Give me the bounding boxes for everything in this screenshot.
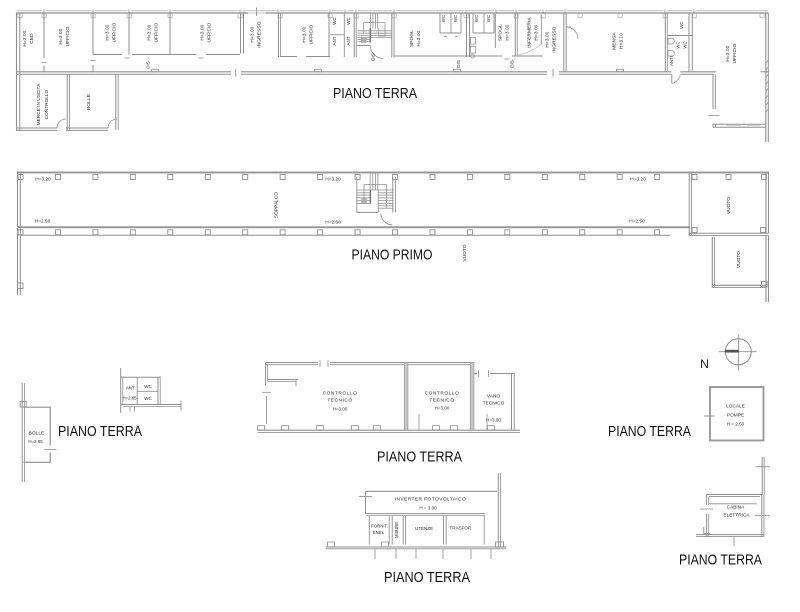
- svg-text:H=3.00: H=3.00: [22, 30, 28, 46]
- svg-text:WC: WC: [474, 15, 479, 22]
- svg-text:INGRESSO: INGRESSO: [257, 21, 263, 47]
- svg-text:TRASFOR.: TRASFOR.: [450, 526, 473, 531]
- svg-text:H = 2.50: H = 2.50: [727, 422, 745, 427]
- svg-text:SOPPALCO: SOPPALCO: [274, 192, 280, 219]
- svg-text:ELETTRICA: ELETTRICA: [723, 513, 750, 519]
- svg-text:WC: WC: [683, 41, 688, 48]
- svg-text:MISURE: MISURE: [394, 522, 399, 538]
- svg-text:PIANO TERRA: PIANO TERRA: [384, 570, 470, 586]
- svg-text:WC: WC: [486, 15, 491, 22]
- svg-text:H=2.50: H=2.50: [35, 219, 51, 225]
- svg-text:H=3.10: H=3.10: [619, 33, 625, 49]
- svg-text:WC: WC: [453, 15, 458, 22]
- svg-text:WC: WC: [144, 384, 152, 389]
- svg-text:ANT: ANT: [126, 386, 135, 391]
- svg-text:PIANO PRIMO: PIANO PRIMO: [352, 248, 433, 264]
- svg-text:PIANO TERRA: PIANO TERRA: [58, 424, 142, 440]
- svg-text:TECNICO: TECNICO: [327, 398, 352, 404]
- svg-text:H=3.00: H=3.00: [416, 30, 422, 46]
- svg-text:ANTI: ANTI: [669, 56, 674, 66]
- svg-text:WC: WC: [144, 396, 152, 401]
- svg-text:INVERTER FOTOVOLTAICO: INVERTER FOTOVOLTAICO: [395, 496, 467, 502]
- svg-text:UFFICIO: UFFICIO: [309, 25, 315, 45]
- svg-text:H=3.00: H=3.00: [545, 31, 551, 47]
- svg-text:DIS: DIS: [456, 60, 461, 68]
- svg-text:BOLLE: BOLLE: [86, 93, 92, 110]
- svg-text:UTENZE: UTENZE: [415, 526, 433, 531]
- svg-text:INFERMERIA: INFERMERIA: [527, 17, 533, 48]
- svg-text:WC: WC: [332, 17, 337, 25]
- svg-text:POMPE: POMPE: [727, 413, 744, 419]
- svg-text:H=3.20: H=3.20: [630, 177, 646, 183]
- svg-text:SPOGL: SPOGL: [498, 24, 504, 41]
- svg-text:H = 3.00: H = 3.00: [419, 505, 437, 510]
- svg-text:H=3.00: H=3.00: [534, 24, 540, 40]
- svg-text:TECNICO: TECNICO: [429, 398, 454, 404]
- svg-text:H=2.85: H=2.85: [122, 396, 137, 401]
- svg-text:DIS: DIS: [510, 60, 515, 68]
- svg-text:ANT: ANT: [332, 36, 337, 45]
- svg-text:H=3.00: H=3.00: [725, 45, 731, 61]
- svg-text:ANT: ANT: [346, 36, 351, 45]
- svg-text:N: N: [700, 357, 709, 371]
- svg-text:DIS: DIS: [371, 53, 376, 61]
- svg-text:H=2.60: H=2.60: [325, 220, 341, 226]
- svg-text:DIS: DIS: [146, 61, 151, 69]
- svg-text:WC: WC: [346, 17, 351, 25]
- svg-text:H=3.00: H=3.00: [435, 406, 450, 411]
- svg-text:VUOTO: VUOTO: [462, 244, 468, 261]
- svg-text:H=3.20: H=3.20: [325, 177, 341, 183]
- svg-text:H=2.85: H=2.85: [28, 439, 43, 444]
- svg-text:PIANO TERRA: PIANO TERRA: [377, 450, 462, 466]
- svg-text:UFFICIO: UFFICIO: [732, 44, 738, 64]
- svg-text:TECNICO: TECNICO: [483, 401, 505, 407]
- svg-text:H=3.00: H=3.00: [147, 24, 153, 40]
- svg-text:VUOTO: VUOTO: [736, 251, 742, 268]
- svg-text:CABINA: CABINA: [727, 505, 746, 511]
- svg-text:UFFICIO: UFFICIO: [154, 23, 160, 43]
- svg-text:VUOTO: VUOTO: [726, 197, 732, 214]
- svg-text:H=3.00: H=3.00: [105, 24, 111, 40]
- svg-text:WC: WC: [441, 15, 446, 22]
- svg-text:MENSA: MENSA: [612, 32, 618, 50]
- svg-text:BOLLE: BOLLE: [29, 431, 45, 437]
- svg-text:H=3.00: H=3.00: [333, 407, 348, 412]
- svg-text:CONTROLLO: CONTROLLO: [425, 391, 460, 397]
- svg-text:CONTROLLO: CONTROLLO: [323, 391, 358, 397]
- svg-text:H=2.50: H=2.50: [629, 219, 645, 225]
- svg-text:INGRESSO: INGRESSO: [552, 26, 558, 52]
- svg-text:ENEL: ENEL: [373, 530, 385, 535]
- svg-text:WC: WC: [679, 21, 684, 29]
- svg-text:CONTROLLO: CONTROLLO: [44, 89, 50, 119]
- svg-text:PIANO TERRA: PIANO TERRA: [679, 553, 762, 569]
- svg-text:LOCALE: LOCALE: [726, 404, 745, 410]
- svg-text:UFFICIO: UFFICIO: [112, 23, 118, 43]
- svg-text:WC: WC: [676, 41, 681, 48]
- svg-text:UFFICIO: UFFICIO: [207, 23, 213, 43]
- svg-text:CED: CED: [29, 33, 35, 44]
- svg-text:H=3.00: H=3.00: [58, 28, 64, 44]
- svg-text:UFFICIO: UFFICIO: [65, 27, 71, 47]
- svg-text:PIANO TERRA: PIANO TERRA: [608, 424, 691, 440]
- svg-text:H=3.00: H=3.00: [505, 24, 511, 40]
- svg-text:FORNIT.: FORNIT.: [371, 523, 388, 528]
- svg-text:PIANO TERRA: PIANO TERRA: [333, 86, 417, 102]
- svg-text:H=3.20: H=3.20: [35, 177, 51, 183]
- svg-text:H=3.00: H=3.00: [250, 26, 256, 42]
- svg-text:SPOGL: SPOGL: [409, 30, 415, 47]
- svg-text:H=3.00: H=3.00: [486, 418, 501, 423]
- svg-text:H=3.00: H=3.00: [302, 26, 308, 42]
- svg-text:VANO: VANO: [487, 394, 501, 400]
- svg-text:MERCE IN USCITA: MERCE IN USCITA: [36, 83, 42, 125]
- svg-text:H=3.00: H=3.00: [200, 24, 206, 40]
